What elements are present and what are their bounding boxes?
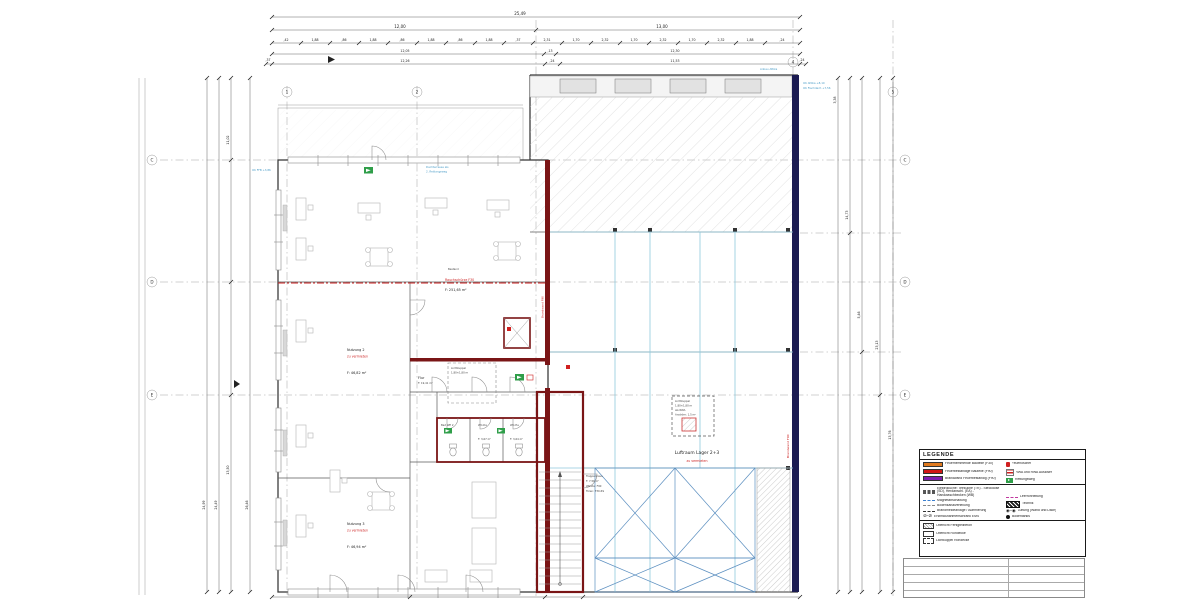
toilet <box>483 448 489 456</box>
annotation-blue: Anbau Attika <box>760 67 778 71</box>
dim-label: 23,13 <box>875 340 879 349</box>
skylight <box>670 79 706 93</box>
dim-label: 12,05 <box>400 49 409 53</box>
rwa-dome-icon <box>682 418 696 431</box>
room-name: WC-He <box>510 423 519 427</box>
legend-label: Technik <box>1022 502 1034 506</box>
legend-item: ◉–◉ Lüftung (Wand und Dach) <box>1006 509 1082 513</box>
room-labels: Bestand Rauchschürze F30 F: 251,65 m² Nu… <box>347 267 719 549</box>
legend-item: Rettungsweg <box>1006 478 1082 483</box>
dim-total: 25,49 <box>514 11 526 16</box>
legend-label: Oberlicht Fertigteilbeton <box>936 524 972 528</box>
dim-label: 1,88 <box>369 38 376 42</box>
legend-item: Elektroküche: Teeküche (TK) - Steckdose … <box>923 487 1003 498</box>
legend-item: RWA und RWA Auslöser <box>1006 469 1082 477</box>
room-status: zu vermieten <box>687 459 708 463</box>
legend-item: Brandmeldeanlage / Alarmierung <box>923 509 1003 513</box>
title-block-row <box>904 559 1084 567</box>
axis-label: 1 <box>286 90 289 95</box>
dim-label: 2,32 <box>659 38 666 42</box>
dim-label: 1,88 <box>311 38 318 42</box>
axis-label: E <box>151 393 154 398</box>
dim-label: 12,30 <box>670 49 679 53</box>
rwa-trigger-icon <box>527 375 533 380</box>
legend-item: Oberlicht Fertigteilbeton <box>923 523 1082 529</box>
dim-label: 5,46 <box>857 311 861 318</box>
toilet <box>450 448 456 456</box>
room-name: Treppenhaus <box>586 474 603 478</box>
floor-tank-icon <box>1006 515 1010 519</box>
dim-label: 1,70 <box>688 38 695 42</box>
annotation-blue: Dachterrasse als <box>426 165 449 169</box>
dim-label: 24,99 <box>202 500 206 509</box>
legend-item: Leerrohrleitung <box>1006 495 1082 499</box>
legend-item: Technik <box>1006 501 1082 508</box>
dim-label: 13,50 <box>226 465 230 474</box>
legend-label: Rettungsweg <box>1015 478 1035 482</box>
legend-label: Magnetabschaltung <box>937 499 967 503</box>
dim-label: 26,46 <box>245 500 249 509</box>
roof-hatch <box>530 97 792 232</box>
fire-alarm-line-icon <box>923 511 935 512</box>
room-area: F: 46,94 m² <box>347 545 367 549</box>
legend-section-openings: Oberlicht Fertigteilbeton Oberlicht Rohd… <box>920 521 1085 545</box>
axis-label: D <box>903 280 906 285</box>
axis-label: C <box>904 158 907 163</box>
legend-item: Oberlicht Rohdecke <box>923 531 1082 537</box>
magnet-line-icon <box>923 500 935 501</box>
legend-title: LEGENDE <box>920 450 1085 460</box>
dim-label: 2,32 <box>601 38 608 42</box>
note-text: Lichtkuppel <box>451 366 466 370</box>
ventilation-icon: ◉–◉ <box>1006 509 1016 513</box>
axis-label: C <box>151 158 154 163</box>
room-area: F: 251,65 m² <box>445 288 467 292</box>
skylight <box>560 79 596 93</box>
legend-item: Bodentanks <box>1006 515 1082 519</box>
room-name: Bad WE 2 <box>441 423 454 427</box>
title-block-divider <box>1008 559 1009 597</box>
legend-label: Feuerhemmende Bauteile (F30) <box>945 462 993 466</box>
dim-label: 13,76 <box>888 430 892 439</box>
dim-label: 12,26 <box>400 59 409 63</box>
exit-sign-icon <box>364 167 373 174</box>
legend-label: Brandmeldeanlage / Alarmierung <box>937 509 986 513</box>
axis-label: 2 <box>416 90 419 95</box>
dim-label: 13,00 <box>656 24 668 29</box>
dim-label: ,42 <box>283 38 288 42</box>
fire-extinguisher-icon <box>1006 462 1010 468</box>
exit-sign-icon <box>444 428 452 434</box>
legend-item: Bodenkanalverteilung <box>923 504 1003 508</box>
brandwand-label: Brandwand F90 <box>541 296 545 318</box>
legend-section-fire: Feuerhemmende Bauteile (F30) Feuerbestän… <box>920 460 1085 485</box>
legend-label: Lichtkuppel Rohdecke <box>936 539 969 543</box>
dim-label: ,86 <box>399 38 404 42</box>
legend-label: Elektroküche: Teeküche (TK) - Steckdose … <box>937 487 1003 498</box>
legend-label: Feuerbeständige Bauteile (F90) <box>945 470 993 474</box>
roof-terrace <box>278 105 523 160</box>
dim-label: ,24 <box>799 58 804 62</box>
room-name: Nutzung 3 <box>347 522 364 526</box>
title-block-row <box>904 575 1084 583</box>
room-area: F: 3,67 m² <box>478 437 491 441</box>
axis-label: D <box>150 280 153 285</box>
legend-label: Feuerlöscher <box>1012 462 1032 466</box>
skylight <box>615 79 651 93</box>
dim-label: ,37 <box>265 58 270 62</box>
rauchschuerze-label: Rauchschürze F30 <box>445 278 474 282</box>
furniture <box>296 198 523 582</box>
dock-hatch <box>757 468 790 592</box>
legend-label: Bodentanks <box>1012 515 1030 519</box>
room-name: WC-Da <box>478 423 487 427</box>
entry-arrow-marker <box>328 56 335 63</box>
legend-item: Magnetabschaltung <box>923 499 1003 503</box>
cyan-partitions <box>550 232 793 592</box>
dimension-chain-right: 3,38 14,73 5,46 23,13 13,76 <box>833 76 895 594</box>
annotation-blue: OK FFB +3,86 <box>252 168 271 172</box>
dim-label: 2,32 <box>717 38 724 42</box>
dim-label: 11,02 <box>226 135 230 144</box>
dim-label: ,24 <box>549 59 554 63</box>
title-block-row <box>904 583 1084 591</box>
dim-label: 24,49 <box>214 500 218 509</box>
note-boxes: Lichtkuppel 1,80×1,80 m Lichtkuppel 1,80… <box>448 363 714 436</box>
dim-label: ,13 <box>547 49 552 53</box>
exit-sign-icon <box>1006 478 1013 483</box>
dim-label: ,37 <box>515 38 520 42</box>
fire-extinguisher-icon <box>507 327 511 331</box>
dim-label: 1,70 <box>572 38 579 42</box>
bracing-zone <box>595 468 790 592</box>
fire-extinguisher-icon <box>566 365 570 369</box>
rwa-icon <box>1006 469 1014 477</box>
dim-label: 2,31 <box>543 38 550 42</box>
dim-label: ,86 <box>457 38 462 42</box>
legend-item: Lichtkuppel Rohdecke <box>923 538 1082 544</box>
room-area: F: 19,41 m² <box>418 381 433 385</box>
legend-item: Brandwand Feuerbeständig (F90) <box>923 476 1003 482</box>
legend-label: Oberlicht Rohdecke <box>936 532 966 536</box>
dim-label: 14,73 <box>845 210 849 219</box>
legend-item: ⊘-⊘ Erstmaßnahmenschrank EMS <box>923 514 1003 519</box>
note-text: als RWA <box>675 408 686 412</box>
axis-label: E <box>904 393 907 398</box>
room-note: Bestand <box>448 267 459 271</box>
note-text: 1,80×1,80 m <box>675 404 693 408</box>
conduit-line-icon <box>1006 497 1018 498</box>
annotation-blue: 2. Rettungsweg <box>426 170 447 174</box>
room-name: Luftraum Lager 2+3 <box>675 450 720 456</box>
legend: LEGENDE Feuerhemmende Bauteile (F30) Feu… <box>919 449 1086 557</box>
dim-label: ,24 <box>779 38 784 42</box>
room-status: zu vermieten <box>347 529 368 533</box>
skylight-shell-icon <box>923 531 934 537</box>
legend-item: Feuerhemmende Bauteile (F30) <box>923 462 1003 468</box>
room-note: Türen: T30-RS <box>586 489 604 493</box>
room-name: Flur <box>418 376 425 380</box>
floor-duct-icon <box>923 505 935 506</box>
dim-label: ,86 <box>341 38 346 42</box>
dim-label: 11,53 <box>670 59 679 63</box>
dim-label: 1,88 <box>427 38 434 42</box>
note-text: Anström: 1,5 m² <box>675 413 696 417</box>
title-block-row <box>904 567 1084 575</box>
toilet <box>516 448 522 456</box>
room-area: F: 7,56 m² <box>586 479 599 483</box>
office-block <box>274 155 548 598</box>
room-name: Nutzung 2 <box>347 348 364 352</box>
note-text: Lichtkuppel <box>675 399 690 403</box>
skylight <box>725 79 761 93</box>
annotation-blue: OK Flachdach +7,56 <box>803 86 831 90</box>
dome-light-icon <box>923 538 934 544</box>
legend-item: Feuerlöscher <box>1006 462 1082 468</box>
room-note: Wände: F90 <box>586 484 602 488</box>
f30-swatch <box>923 462 943 468</box>
annotation-blue: OK Attika +8,10 <box>803 81 825 85</box>
legend-label: Bodenkanalverteilung <box>937 504 970 508</box>
kitchen-fittings-icon <box>923 490 935 494</box>
dimension-chain-left: 24,99 24,49 11,02 13,50 26,46 <box>202 76 252 594</box>
dim-label: 1,88 <box>485 38 492 42</box>
legend-label: Lüftung (Wand und Dach) <box>1018 509 1057 513</box>
room-status: zu vermieten <box>347 355 368 359</box>
room-area: F: 46,82 m² <box>347 371 367 375</box>
brandwand-label: Brandwand F90 <box>786 434 790 458</box>
exit-sign-icon <box>515 374 524 381</box>
dim-label: 12,00 <box>394 24 406 29</box>
technik-icon <box>1006 501 1020 508</box>
note-text: 1,80×1,80 m <box>451 371 469 375</box>
legend-label: RWA und RWA Auslöser <box>1016 471 1053 475</box>
dim-label: 1,88 <box>746 38 753 42</box>
brandwand-swatch <box>923 476 943 482</box>
exit-sign-icon <box>497 428 505 434</box>
room-area: F: 3,64 m² <box>510 437 523 441</box>
dim-label: 1,70 <box>630 38 637 42</box>
floor-plan-sheet: 1 2 3 4 5 C D E C D E 25,49 12,00 13,00 … <box>0 0 1200 600</box>
legend-label: Leerrohrleitung <box>1020 495 1043 499</box>
ems-icon: ⊘-⊘ <box>923 514 932 519</box>
title-block <box>903 558 1085 598</box>
brandwand-navy <box>792 75 799 592</box>
dim-label: 3,38 <box>833 96 837 103</box>
legend-label: Brandwand Feuerbeständig (F90) <box>945 477 996 481</box>
skylight-precast-icon <box>923 523 934 529</box>
direction-marker <box>234 380 240 388</box>
f90-swatch <box>923 469 943 475</box>
legend-item: Feuerbeständige Bauteile (F90) <box>923 469 1003 475</box>
legend-label: Erstmaßnahmenschrank EMS <box>934 515 979 519</box>
legend-section-installations: Elektroküche: Teeküche (TK) - Steckdose … <box>920 485 1085 521</box>
